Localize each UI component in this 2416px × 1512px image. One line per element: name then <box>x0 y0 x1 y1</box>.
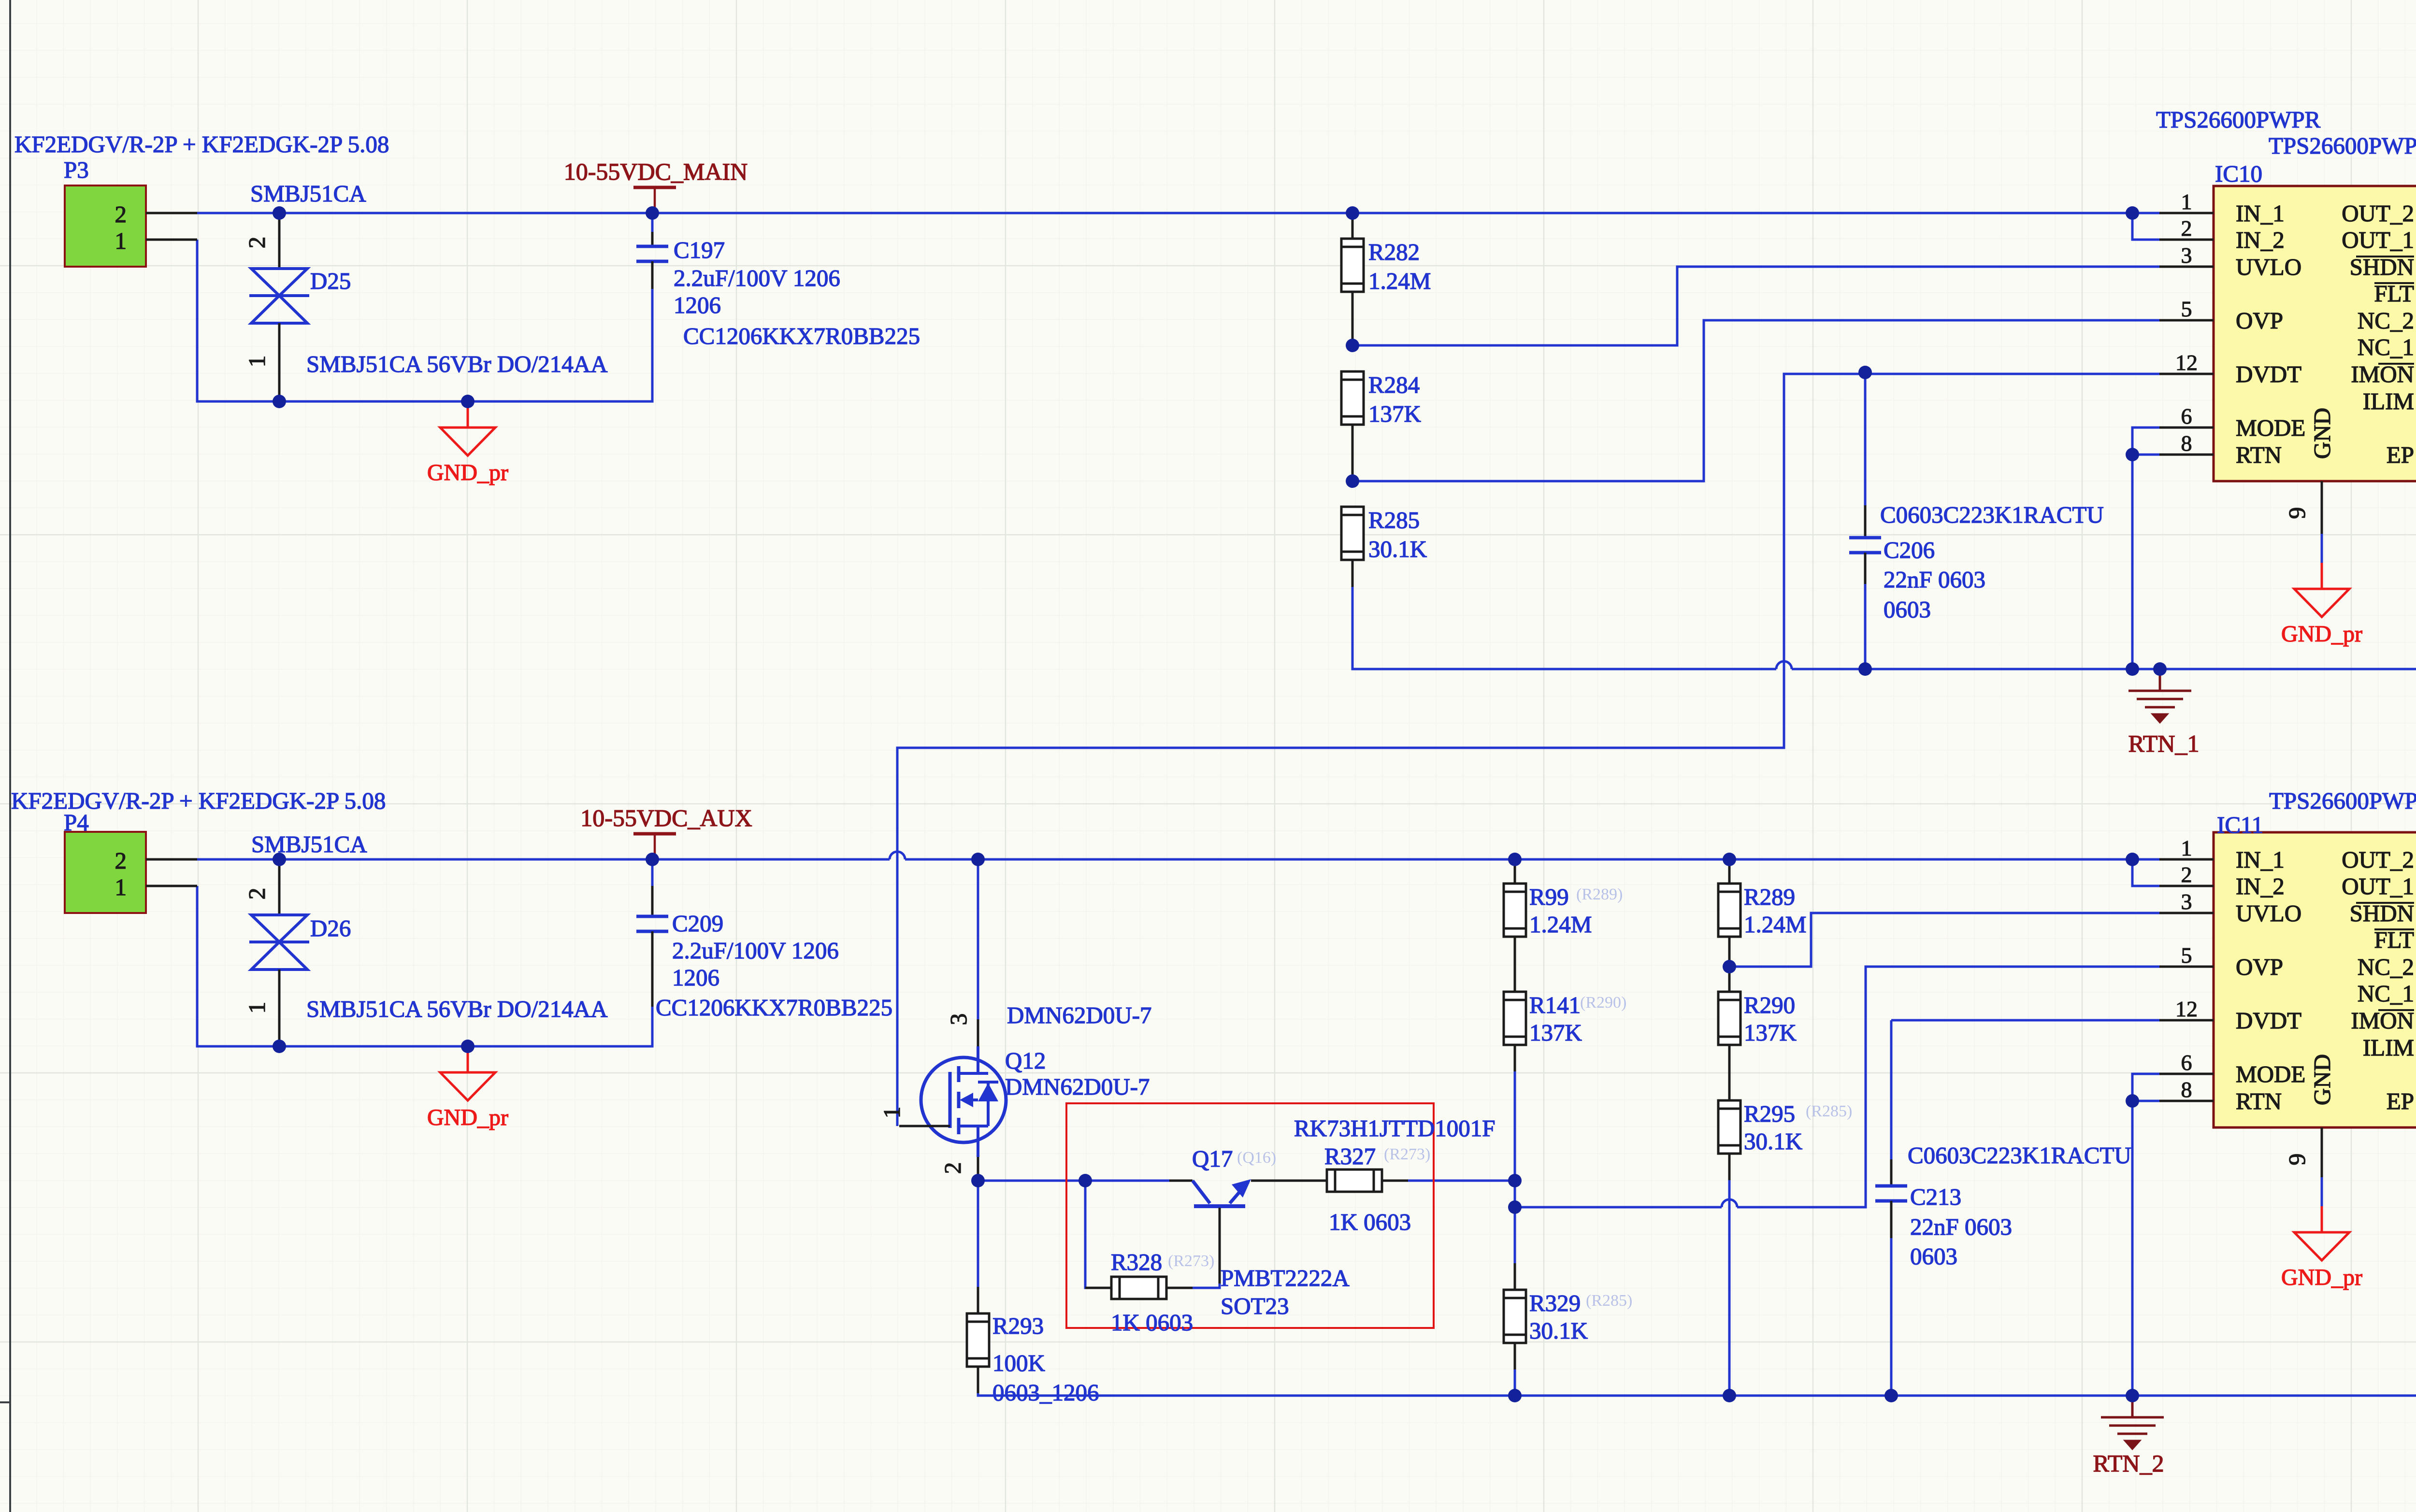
svg-text:NC_2: NC_2 <box>2358 307 2414 334</box>
svg-text:OVP: OVP <box>2236 307 2283 334</box>
svg-text:SOT23: SOT23 <box>1221 1293 1289 1319</box>
svg-text:IMON: IMON <box>2351 361 2414 387</box>
svg-text:OUT_2: OUT_2 <box>2342 846 2414 873</box>
svg-text:TPS26600PWPR: TPS26600PWPR <box>2156 106 2321 133</box>
svg-text:GND_pr: GND_pr <box>2281 1265 2362 1290</box>
svg-text:0603_1206: 0603_1206 <box>992 1379 1099 1406</box>
svg-text:(R273): (R273) <box>1168 1252 1214 1270</box>
svg-text:Q17: Q17 <box>1192 1145 1233 1172</box>
svg-text:2: 2 <box>939 1162 966 1174</box>
svg-text:1: 1 <box>878 1107 905 1119</box>
svg-text:2: 2 <box>115 201 127 228</box>
svg-text:ILIM: ILIM <box>2363 388 2414 414</box>
svg-text:1: 1 <box>115 228 127 254</box>
svg-text:R329: R329 <box>1529 1290 1581 1316</box>
svg-text:EP: EP <box>2387 1088 2414 1114</box>
svg-text:IN_2: IN_2 <box>2236 873 2285 899</box>
svg-text:R293: R293 <box>992 1312 1044 1339</box>
svg-text:DVDT: DVDT <box>2236 1007 2301 1034</box>
svg-text:22nF 0603: 22nF 0603 <box>1884 566 1985 593</box>
svg-text:(R273): (R273) <box>1384 1145 1430 1163</box>
svg-text:9: 9 <box>2284 507 2310 519</box>
svg-text:(Q16): (Q16) <box>1237 1149 1276 1167</box>
svg-text:RTN_1: RTN_1 <box>2128 730 2200 757</box>
svg-text:10-55VDC_MAIN: 10-55VDC_MAIN <box>564 158 748 185</box>
svg-text:RTN_2: RTN_2 <box>2093 1450 2164 1477</box>
svg-text:137K: 137K <box>1744 1019 1797 1046</box>
svg-text:0603: 0603 <box>1910 1243 1957 1270</box>
svg-text:9: 9 <box>2284 1154 2310 1166</box>
svg-text:5: 5 <box>2181 943 2192 968</box>
svg-text:30.1K: 30.1K <box>1744 1128 1802 1155</box>
svg-text:R285: R285 <box>1368 507 1420 533</box>
svg-text:R99: R99 <box>1529 884 1569 910</box>
svg-text:GND_pr: GND_pr <box>2281 621 2362 647</box>
svg-text:DVDT: DVDT <box>2236 361 2301 387</box>
svg-text:8: 8 <box>2181 431 2192 456</box>
svg-text:SHDN: SHDN <box>2350 254 2414 280</box>
svg-text:DMN62D0U-7: DMN62D0U-7 <box>1005 1073 1150 1100</box>
svg-text:OUT_2: OUT_2 <box>2342 200 2414 227</box>
svg-text:2.2uF/100V 1206: 2.2uF/100V 1206 <box>674 265 840 291</box>
svg-text:1K 0603: 1K 0603 <box>1329 1209 1411 1235</box>
svg-text:TPS26600PWPR: TPS26600PWPR <box>2269 132 2416 159</box>
svg-text:R327: R327 <box>1324 1143 1376 1170</box>
svg-text:2: 2 <box>2181 216 2192 241</box>
svg-text:OUT_1: OUT_1 <box>2342 227 2414 253</box>
svg-text:R284: R284 <box>1368 371 1420 398</box>
svg-text:3: 3 <box>2181 889 2192 914</box>
svg-text:UVLO: UVLO <box>2236 900 2301 927</box>
svg-text:R282: R282 <box>1368 239 1420 265</box>
svg-text:SHDN: SHDN <box>2350 900 2414 927</box>
svg-text:SMBJ51CA 56VBr DO/214AA: SMBJ51CA 56VBr DO/214AA <box>306 351 608 377</box>
svg-text:(R289): (R289) <box>1576 885 1623 903</box>
svg-text:1: 1 <box>2181 189 2192 214</box>
svg-text:5: 5 <box>2181 297 2192 321</box>
svg-text:1: 1 <box>115 874 127 900</box>
svg-text:(R290): (R290) <box>1580 994 1626 1012</box>
svg-text:IC11: IC11 <box>2217 812 2263 838</box>
svg-text:Q12: Q12 <box>1005 1047 1046 1074</box>
svg-text:RK73H1JTTD1001F: RK73H1JTTD1001F <box>1294 1115 1496 1141</box>
svg-text:IN_1: IN_1 <box>2236 846 2285 873</box>
svg-text:SMBJ51CA: SMBJ51CA <box>250 180 366 207</box>
svg-text:CC1206KKX7R0BB225: CC1206KKX7R0BB225 <box>683 323 920 349</box>
svg-text:R141: R141 <box>1529 992 1581 1018</box>
svg-text:12: 12 <box>2175 350 2198 375</box>
svg-text:0603: 0603 <box>1884 596 1931 623</box>
svg-text:KF2EDGV/R-2P + KF2EDGK-2P 5.08: KF2EDGV/R-2P + KF2EDGK-2P 5.08 <box>14 131 389 157</box>
svg-text:1: 1 <box>244 356 270 368</box>
svg-text:PMBT2222A: PMBT2222A <box>1221 1265 1350 1291</box>
svg-text:100K: 100K <box>992 1350 1045 1376</box>
svg-text:SMBJ51CA: SMBJ51CA <box>251 831 367 857</box>
svg-text:2: 2 <box>244 888 270 900</box>
svg-text:EP: EP <box>2387 442 2414 468</box>
svg-text:(R285): (R285) <box>1586 1292 1632 1310</box>
svg-text:GND: GND <box>2309 1054 2335 1105</box>
svg-text:137K: 137K <box>1368 400 1421 427</box>
svg-text:OUT_1: OUT_1 <box>2342 873 2414 899</box>
svg-text:1K 0603: 1K 0603 <box>1111 1309 1193 1336</box>
svg-text:3: 3 <box>945 1013 972 1026</box>
svg-text:1.24M: 1.24M <box>1744 911 1806 938</box>
svg-text:RTN: RTN <box>2236 1088 2282 1114</box>
svg-text:GND: GND <box>2309 408 2335 459</box>
svg-text:1206: 1206 <box>672 964 719 991</box>
svg-text:1: 1 <box>2181 836 2192 860</box>
svg-text:R328: R328 <box>1111 1249 1162 1275</box>
svg-text:137K: 137K <box>1529 1019 1582 1046</box>
svg-text:1.24M: 1.24M <box>1368 268 1431 294</box>
svg-text:2: 2 <box>244 237 270 249</box>
svg-text:IN_1: IN_1 <box>2236 200 2285 227</box>
svg-text:RTN: RTN <box>2236 442 2282 468</box>
svg-text:FLT: FLT <box>2374 927 2414 953</box>
svg-text:MODE: MODE <box>2236 414 2305 441</box>
svg-text:30.1K: 30.1K <box>1368 536 1427 562</box>
svg-text:30.1K: 30.1K <box>1529 1317 1588 1344</box>
svg-text:R289: R289 <box>1744 884 1795 910</box>
svg-text:12: 12 <box>2175 997 2198 1021</box>
svg-text:IN_2: IN_2 <box>2236 227 2285 253</box>
svg-text:C197: C197 <box>674 237 725 263</box>
svg-text:D26: D26 <box>310 915 351 941</box>
svg-text:CC1206KKX7R0BB225: CC1206KKX7R0BB225 <box>656 994 892 1021</box>
svg-text:C206: C206 <box>1884 537 1935 563</box>
svg-text:C213: C213 <box>1910 1184 1961 1210</box>
svg-text:C209: C209 <box>672 910 723 937</box>
svg-text:MODE: MODE <box>2236 1061 2305 1087</box>
svg-text:R295: R295 <box>1744 1100 1795 1127</box>
svg-text:22nF 0603: 22nF 0603 <box>1910 1213 2012 1240</box>
svg-text:R290: R290 <box>1744 992 1795 1018</box>
svg-text:1.24M: 1.24M <box>1529 911 1592 938</box>
svg-text:FLT: FLT <box>2374 280 2414 307</box>
svg-text:KF2EDGV/R-2P + KF2EDGK-2P 5.08: KF2EDGV/R-2P + KF2EDGK-2P 5.08 <box>11 787 386 814</box>
svg-text:GND_pr: GND_pr <box>427 460 508 485</box>
svg-text:1206: 1206 <box>674 292 721 318</box>
svg-text:SMBJ51CA 56VBr DO/214AA: SMBJ51CA 56VBr DO/214AA <box>306 996 608 1022</box>
svg-text:UVLO: UVLO <box>2236 254 2301 280</box>
svg-text:P3: P3 <box>64 157 89 183</box>
svg-text:NC_2: NC_2 <box>2358 954 2414 980</box>
svg-text:IMON: IMON <box>2351 1007 2414 1034</box>
svg-text:TPS26600PWPR: TPS26600PWPR <box>2269 787 2416 814</box>
svg-text:D25: D25 <box>310 268 351 294</box>
svg-text:2: 2 <box>2181 862 2192 887</box>
svg-text:1: 1 <box>244 1002 270 1014</box>
svg-text:C0603C223K1RACTU: C0603C223K1RACTU <box>1908 1142 2131 1169</box>
svg-text:6: 6 <box>2181 404 2192 428</box>
svg-text:6: 6 <box>2181 1050 2192 1075</box>
svg-text:OVP: OVP <box>2236 954 2283 980</box>
svg-text:DMN62D0U-7: DMN62D0U-7 <box>1007 1002 1151 1028</box>
svg-text:(R285): (R285) <box>1806 1102 1852 1120</box>
svg-text:GND_pr: GND_pr <box>427 1105 508 1130</box>
svg-text:NC_1: NC_1 <box>2358 334 2414 360</box>
svg-text:C0603C223K1RACTU: C0603C223K1RACTU <box>1880 501 2104 528</box>
svg-text:NC_1: NC_1 <box>2358 980 2414 1007</box>
svg-text:8: 8 <box>2181 1077 2192 1102</box>
svg-text:3: 3 <box>2181 243 2192 268</box>
svg-text:2: 2 <box>115 847 127 874</box>
svg-text:2.2uF/100V 1206: 2.2uF/100V 1206 <box>672 937 839 964</box>
svg-text:ILIM: ILIM <box>2363 1034 2414 1061</box>
svg-text:IC10: IC10 <box>2215 160 2262 187</box>
svg-text:10-55VDC_AUX: 10-55VDC_AUX <box>580 804 752 831</box>
